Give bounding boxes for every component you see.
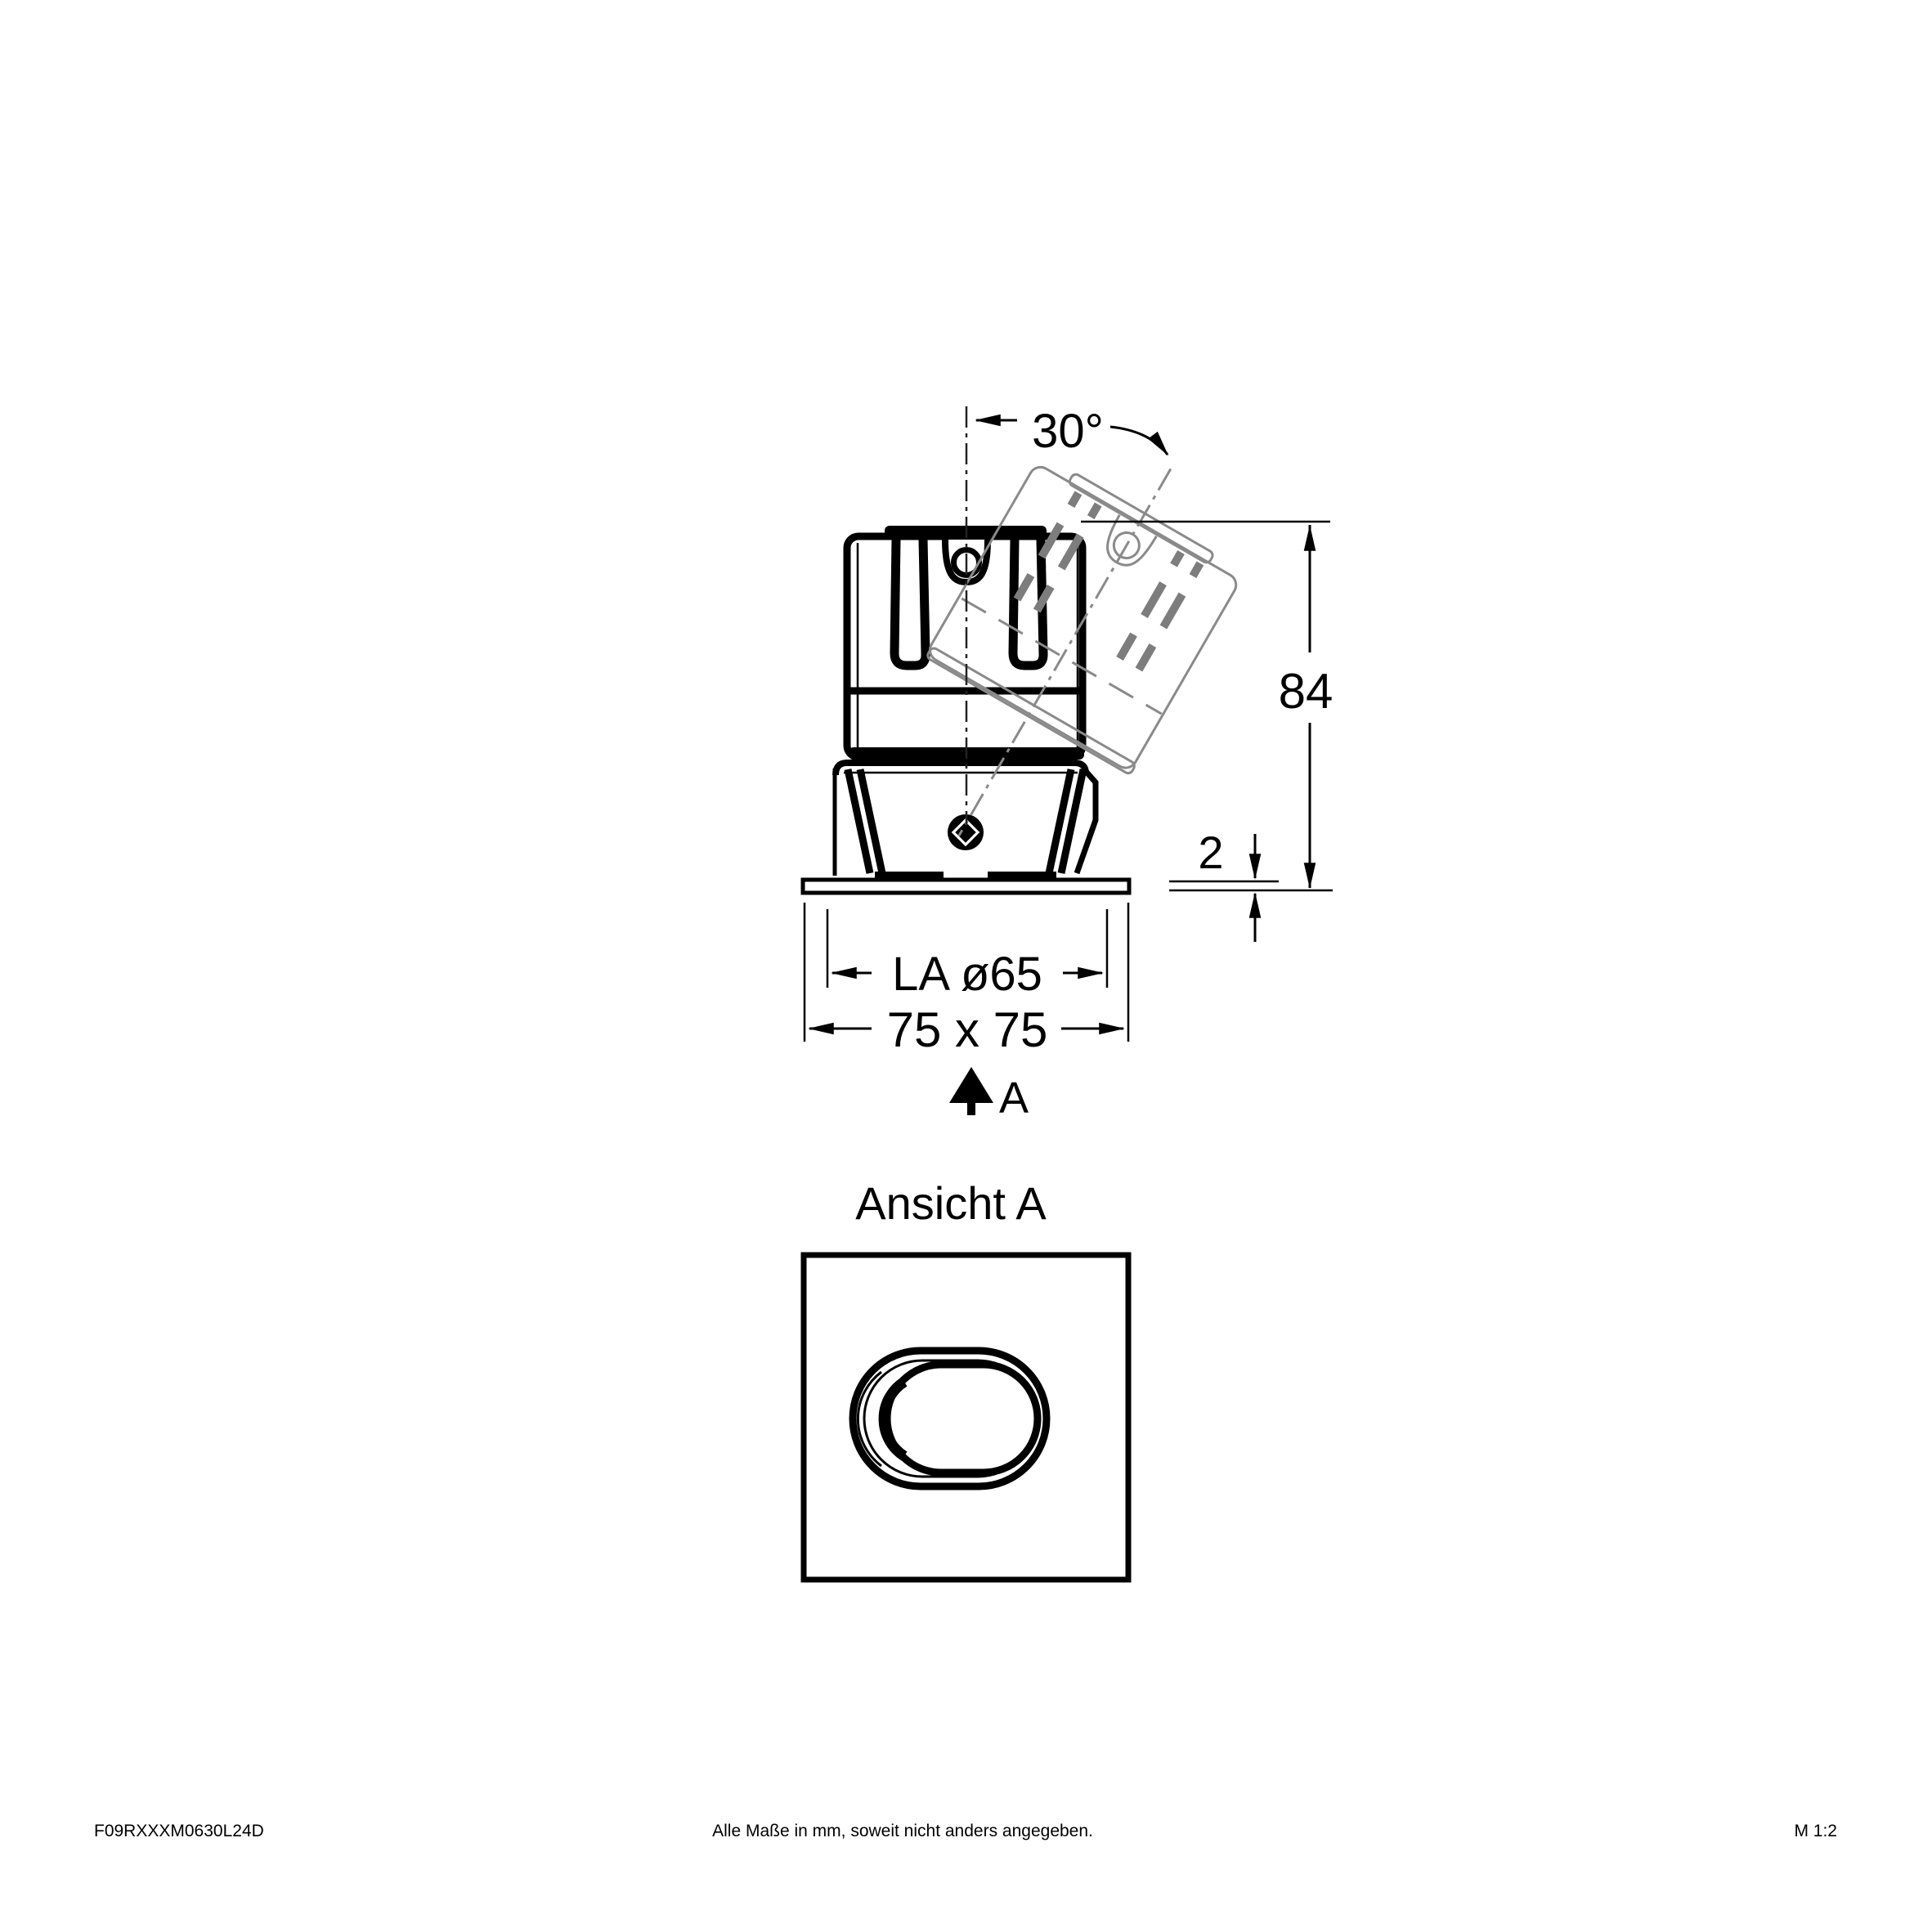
front-view-title: Ansicht A xyxy=(855,1177,1047,1229)
footer-note: Alle Maße in mm, soweit nicht anders ang… xyxy=(712,1822,1093,1840)
flange-thickness-text: 2 xyxy=(1198,827,1223,878)
footer-article-number: F09RXXXM0630L24D xyxy=(94,1822,264,1840)
height-text: 84 xyxy=(1279,664,1334,719)
tilt-arc-arrow xyxy=(1110,427,1168,455)
view-direction-arrow xyxy=(949,1067,993,1103)
view-direction-text: A xyxy=(999,1074,1029,1123)
flange xyxy=(803,880,1129,893)
flange-size-text: 75 x 75 xyxy=(887,1002,1048,1057)
dimensions xyxy=(805,420,1333,1115)
luminaire-dimension-drawing: 30° 84 2 LA ø65 75 x 75 A Ansicht A F09R… xyxy=(0,0,1932,1932)
front-view xyxy=(804,1255,1128,1580)
tilt-angle-text: 30° xyxy=(1032,405,1104,458)
cutout-text: LA ø65 xyxy=(892,948,1042,1001)
footer-scale: M 1:2 xyxy=(1794,1822,1837,1840)
view-direction-arrow-stem xyxy=(967,1103,975,1115)
technical-drawing-page: 30° 84 2 LA ø65 75 x 75 A Ansicht A F09R… xyxy=(0,0,1932,1932)
